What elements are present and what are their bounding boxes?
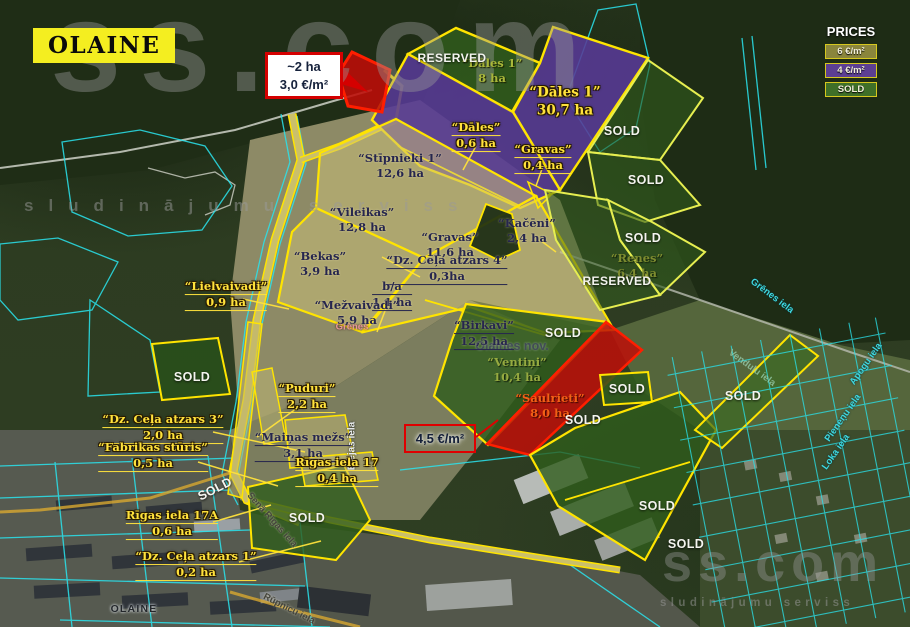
sold-label: SOLD [639,499,675,513]
reserved-label: RESERVED [417,51,486,65]
callout-mid-line: 4,5 €/m² [416,431,464,446]
parcel-label-dales1-30: “Dāles 1”30,7 ha [529,84,600,119]
sold-label: SOLD [668,537,704,551]
callout-top-line2: 3,0 €/m² [280,77,328,92]
callout-top-line1: ~2 ha [287,59,321,74]
sold-label: SOLD [604,124,640,138]
sold-label: SOLD [545,326,581,340]
parcel-label-birkavi: “Birkavi”12,5 ha [454,318,514,350]
sold-label: SOLD [625,231,661,245]
price-callout-mid: 4,5 €/m² [404,424,476,453]
legend-item-6eur: 6 €/m² [825,44,877,59]
parcel-label-kaceni: “Kačēni”2,4 ha [498,216,556,246]
parcel-label-vileikas: “Vileikas”12,8 ha [330,205,395,235]
sold-label: SOLD [628,173,664,187]
parcel-label-ventini: “Ventiņi”10,4 ha [487,355,547,385]
parcel-label-rigas17: Rīgas iela 170,4 ha [295,455,378,487]
parcel-label-lielvaivadi: “Lielvaivadi”0,9 ha [185,279,267,311]
price-callout-top: ~2 ha 3,0 €/m² [265,52,343,99]
sold-label: SOLD [725,389,761,403]
town-label: OLAINE [111,603,158,615]
parcel-label-dales: “Dāles”0,6 ha [452,120,501,152]
parcel-sold-left [152,338,230,400]
parcel-label-fabrikas: “Fabrikas stūris”0,5 ha [98,440,208,472]
legend-title: PRICES [816,24,886,39]
legend-item-sold: SOLD [825,82,877,97]
parcel-label-gravas-04: “Gravas”0,4 ha [514,142,571,174]
legend-item-4eur: 4 €/m² [825,63,877,78]
parcel-label-bekas: “Bekas”3,9 ha [294,249,346,279]
sold-label: SOLD [289,511,325,525]
parcel-label-stipnieki: “Stīpnieki 1”12,6 ha [358,151,442,181]
map-screenshot: ss.com sludinājumu serviss ss.com sludin… [0,0,910,627]
sold-label: SOLD [174,370,210,384]
parcel-label-atzars1: “Dz. Ceļa atzars 1”0,2 ha [135,549,256,581]
sold-label: SOLD [609,382,645,396]
parcel-label-puduri: “Puduri”2,2 ha [278,381,335,413]
parcel-label-rigas17a: Rīgas iela 17A0,6 ha [126,508,218,540]
reserved-label: RESERVED [582,274,651,288]
price-legend: PRICES 6 €/m² 4 €/m² SOLD [816,24,886,101]
sold-label: SOLD [565,413,601,427]
title-badge: OLAINE [33,28,175,63]
parcel-label-mezvaivadi: “Mežvaivadi”5,9 ha [315,298,400,328]
